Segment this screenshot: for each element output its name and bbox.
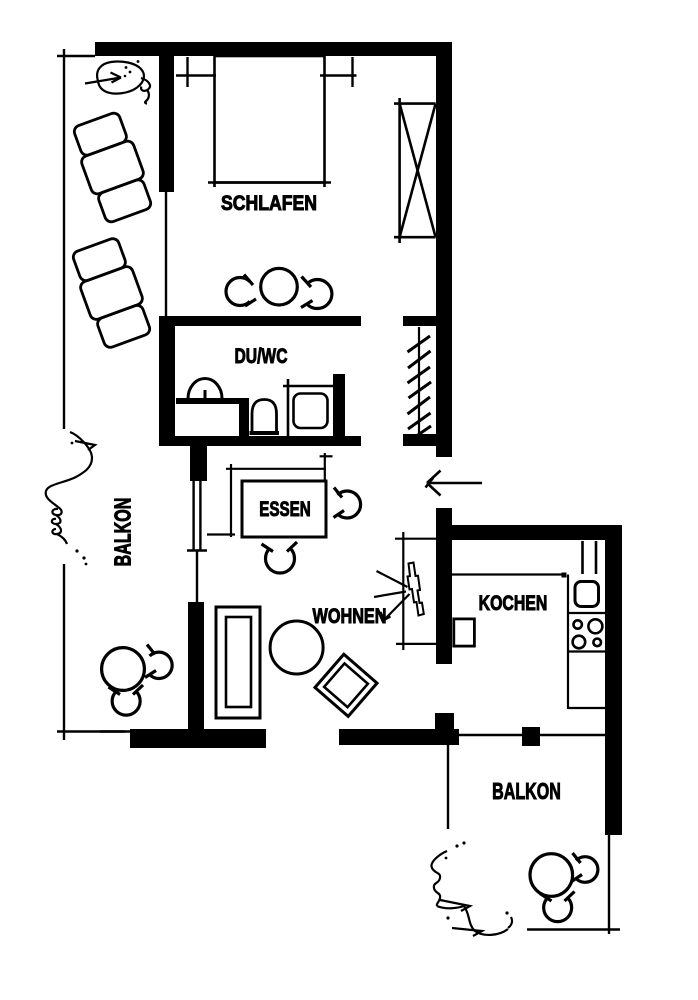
svg-text:WOHNEN: WOHNEN xyxy=(313,604,387,627)
svg-text:DU/WC: DU/WC xyxy=(235,344,288,368)
svg-text:KOCHEN: KOCHEN xyxy=(479,591,548,615)
svg-text:BALKON: BALKON xyxy=(492,779,561,805)
svg-text:ESSEN: ESSEN xyxy=(259,497,310,521)
svg-text:SCHLAFEN: SCHLAFEN xyxy=(221,192,317,216)
svg-text:BALKON: BALKON xyxy=(111,498,137,567)
